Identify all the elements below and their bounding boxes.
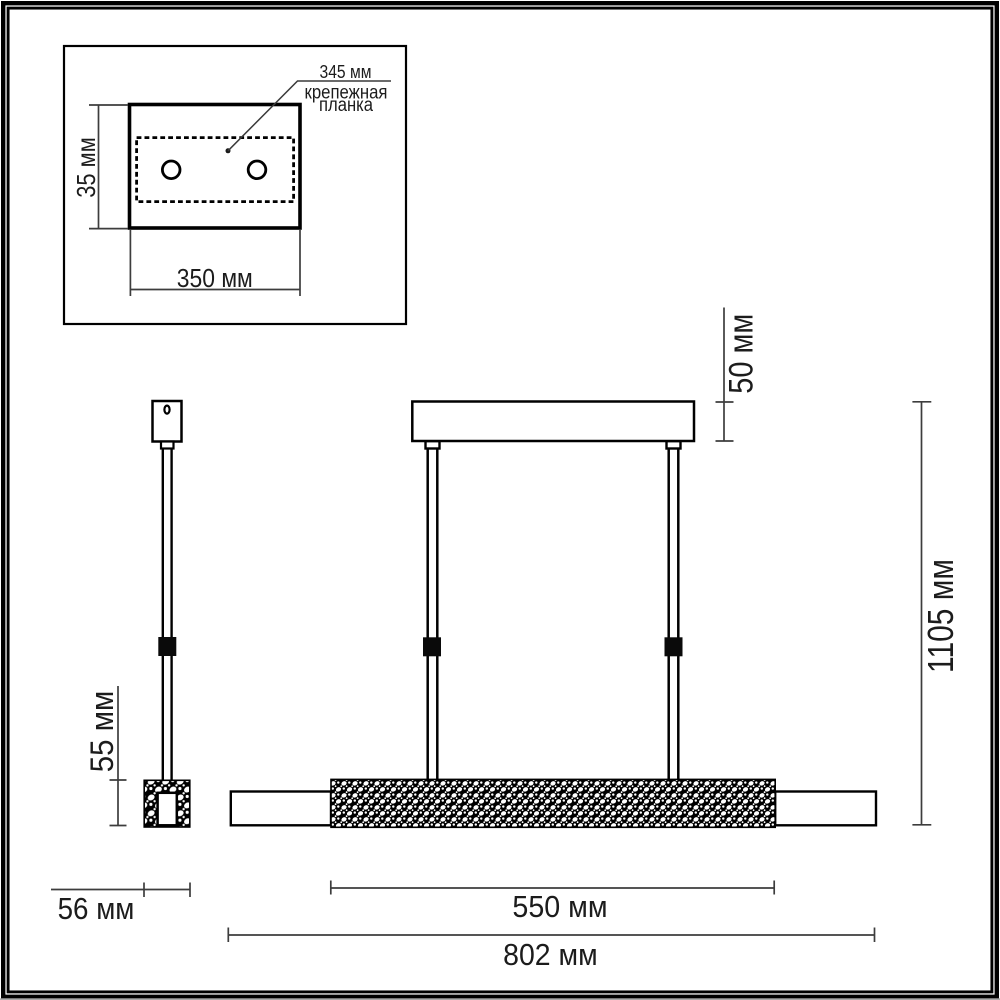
svg-text:56 мм: 56 мм [58, 892, 135, 926]
svg-text:345 мм: 345 мм [320, 61, 372, 82]
svg-text:802 мм: 802 мм [503, 938, 598, 972]
svg-text:35 мм: 35 мм [71, 137, 101, 198]
svg-text:550 мм: 550 мм [512, 890, 607, 924]
svg-text:55 мм: 55 мм [84, 691, 120, 772]
svg-text:1105 мм: 1105 мм [920, 559, 961, 673]
svg-text:350 мм: 350 мм [177, 265, 253, 293]
svg-text:планка: планка [319, 95, 373, 116]
svg-text:50 мм: 50 мм [722, 314, 760, 394]
